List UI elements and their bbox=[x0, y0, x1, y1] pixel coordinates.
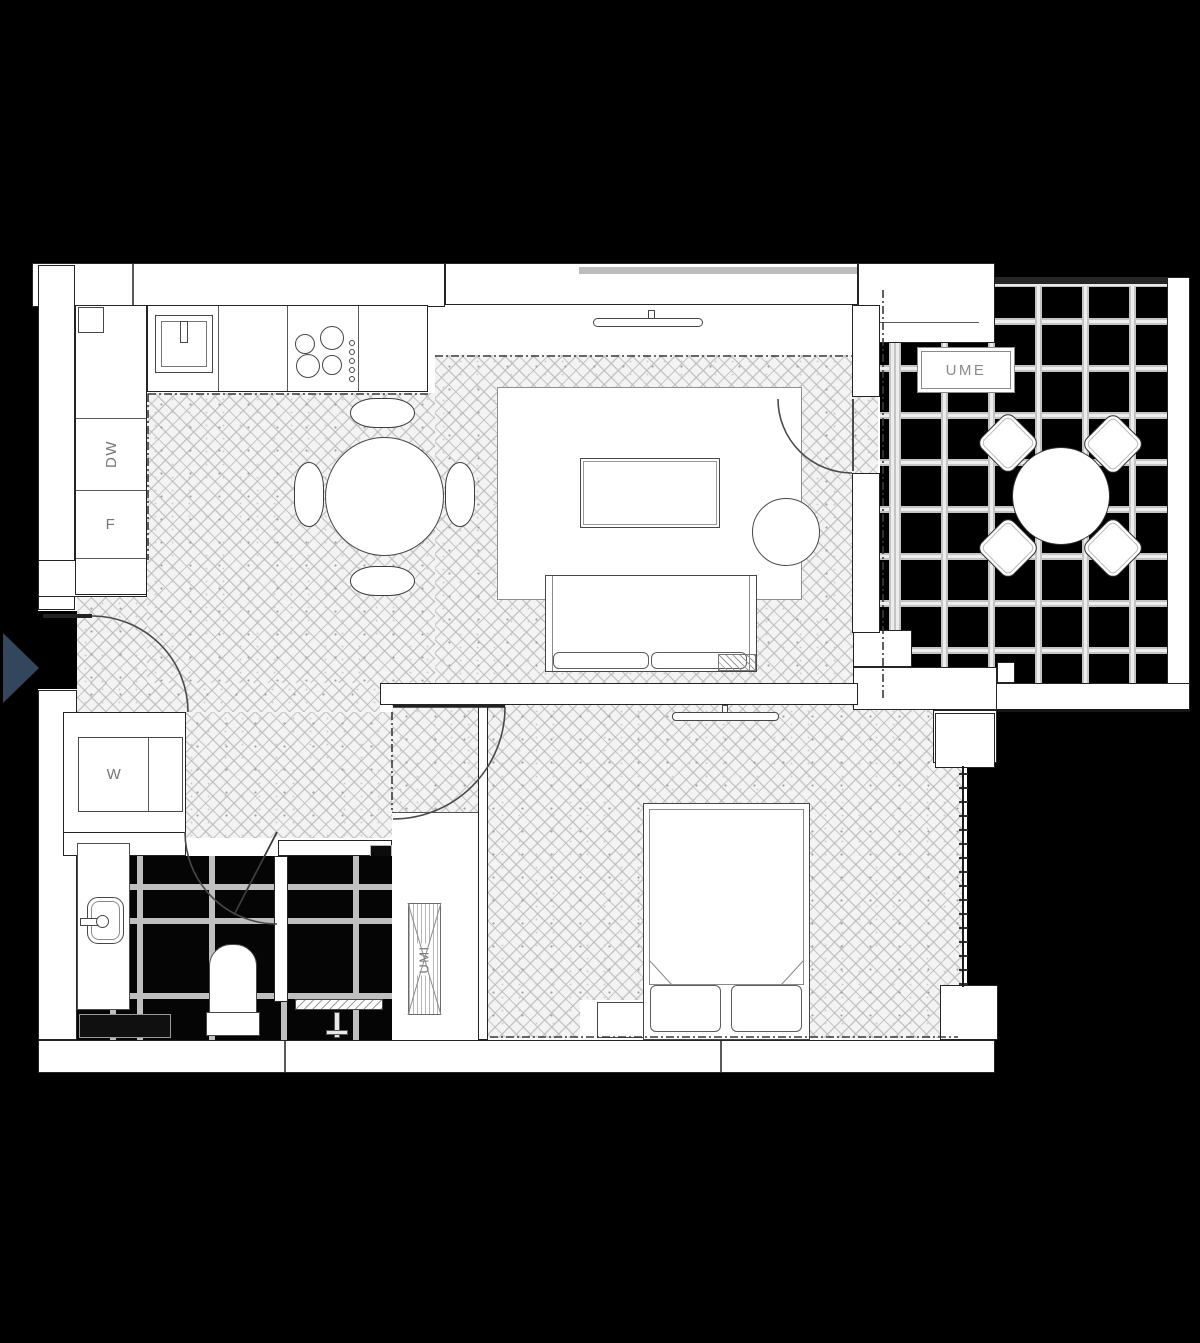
wall-living-right-lower bbox=[852, 473, 880, 633]
entry-threshold bbox=[38, 611, 77, 689]
bedroom-window-void bbox=[967, 766, 998, 987]
bedroom-window-line bbox=[962, 766, 964, 987]
utility-closet bbox=[853, 630, 912, 667]
tv-bedroom-stand bbox=[722, 705, 728, 713]
washer-divider bbox=[148, 738, 149, 811]
balcony-cabinet-inner: UME bbox=[921, 351, 1011, 389]
sink-faucet bbox=[180, 321, 188, 343]
wall-top-left bbox=[32, 263, 445, 307]
dining-chair-west bbox=[294, 462, 324, 527]
faucet-knob bbox=[96, 915, 109, 928]
washer-label: W bbox=[87, 738, 142, 811]
coffee-table-inner bbox=[583, 461, 717, 525]
shower-tap-bar bbox=[326, 1030, 348, 1035]
floor-plan: W DW F bbox=[0, 0, 1200, 1343]
toilet-tank bbox=[206, 1012, 260, 1036]
dining-chair-north bbox=[350, 398, 415, 428]
hallway-floor-upper bbox=[77, 683, 380, 712]
sofa bbox=[545, 575, 757, 672]
dining-table bbox=[325, 437, 444, 556]
wall-partition bbox=[380, 683, 858, 705]
pillow bbox=[650, 985, 721, 1032]
wall-divider bbox=[284, 1041, 286, 1072]
bed bbox=[643, 803, 810, 1040]
wall-divider bbox=[132, 264, 134, 306]
stove-knob bbox=[349, 367, 355, 373]
entry-arrow-icon bbox=[3, 633, 39, 703]
shower-partition bbox=[274, 856, 288, 1002]
washer-label-text: W bbox=[107, 766, 123, 783]
wall-divider bbox=[720, 1041, 722, 1072]
balcony-cabinet: UME bbox=[917, 347, 1015, 393]
fridge-label-text: F bbox=[106, 516, 117, 533]
dishwasher-label-text: DW bbox=[103, 440, 120, 468]
cabinet-divider bbox=[358, 306, 359, 391]
balcony-right-rail bbox=[1167, 277, 1190, 712]
stove-knob bbox=[349, 340, 355, 346]
window-pier-bottom bbox=[940, 985, 998, 1040]
wall-left bbox=[38, 265, 75, 610]
balcony-top-rail bbox=[995, 277, 1190, 286]
wardrobe-label-text: UMI bbox=[417, 943, 432, 975]
utility-closet bbox=[853, 667, 997, 710]
cabinet-divider bbox=[287, 306, 288, 391]
radiator bbox=[79, 1014, 171, 1038]
wall-bottom bbox=[38, 1040, 995, 1073]
tv-living bbox=[593, 318, 703, 327]
entry-floor bbox=[77, 597, 147, 683]
dining-chair-south bbox=[350, 566, 415, 596]
toilet-bowl bbox=[209, 944, 257, 1018]
shower-drain bbox=[295, 999, 383, 1010]
burner bbox=[296, 354, 320, 378]
burner bbox=[295, 334, 315, 354]
cabinet-divider bbox=[76, 418, 146, 419]
stove-knob bbox=[349, 358, 355, 364]
window-pier-top bbox=[935, 713, 995, 768]
burner bbox=[322, 355, 342, 375]
burner bbox=[320, 326, 344, 350]
wardrobe-label: UMI bbox=[416, 930, 433, 990]
wall-living-right-upper bbox=[852, 305, 880, 397]
fridge-label: F bbox=[91, 512, 131, 536]
dining-chair-east bbox=[445, 462, 475, 527]
window-glass bbox=[579, 267, 857, 274]
tv-living-stand bbox=[648, 310, 655, 319]
blanket bbox=[649, 809, 804, 985]
wall-top-window bbox=[445, 263, 858, 305]
utility-closet-nub bbox=[997, 662, 1015, 683]
counter-corner-box bbox=[78, 307, 104, 333]
hallway-floor bbox=[183, 712, 392, 838]
wall-closet-east bbox=[478, 705, 488, 1040]
stove-knob bbox=[349, 349, 355, 355]
cabinet-divider bbox=[76, 558, 146, 559]
tv-bedroom bbox=[672, 712, 779, 721]
stove-knob bbox=[349, 376, 355, 382]
balcony-table bbox=[1012, 447, 1110, 545]
sofa-cushion bbox=[553, 652, 649, 669]
coffee-table bbox=[580, 458, 720, 528]
side-table bbox=[752, 498, 820, 566]
cabinet-divider bbox=[76, 490, 146, 491]
cabinet-divider bbox=[218, 306, 219, 391]
washing-machine: W bbox=[78, 737, 183, 812]
pillow bbox=[731, 985, 802, 1032]
balcony-cabinet-label: UME bbox=[946, 362, 987, 379]
dishwasher-label: DW bbox=[101, 424, 121, 484]
sofa-throw bbox=[718, 654, 756, 671]
